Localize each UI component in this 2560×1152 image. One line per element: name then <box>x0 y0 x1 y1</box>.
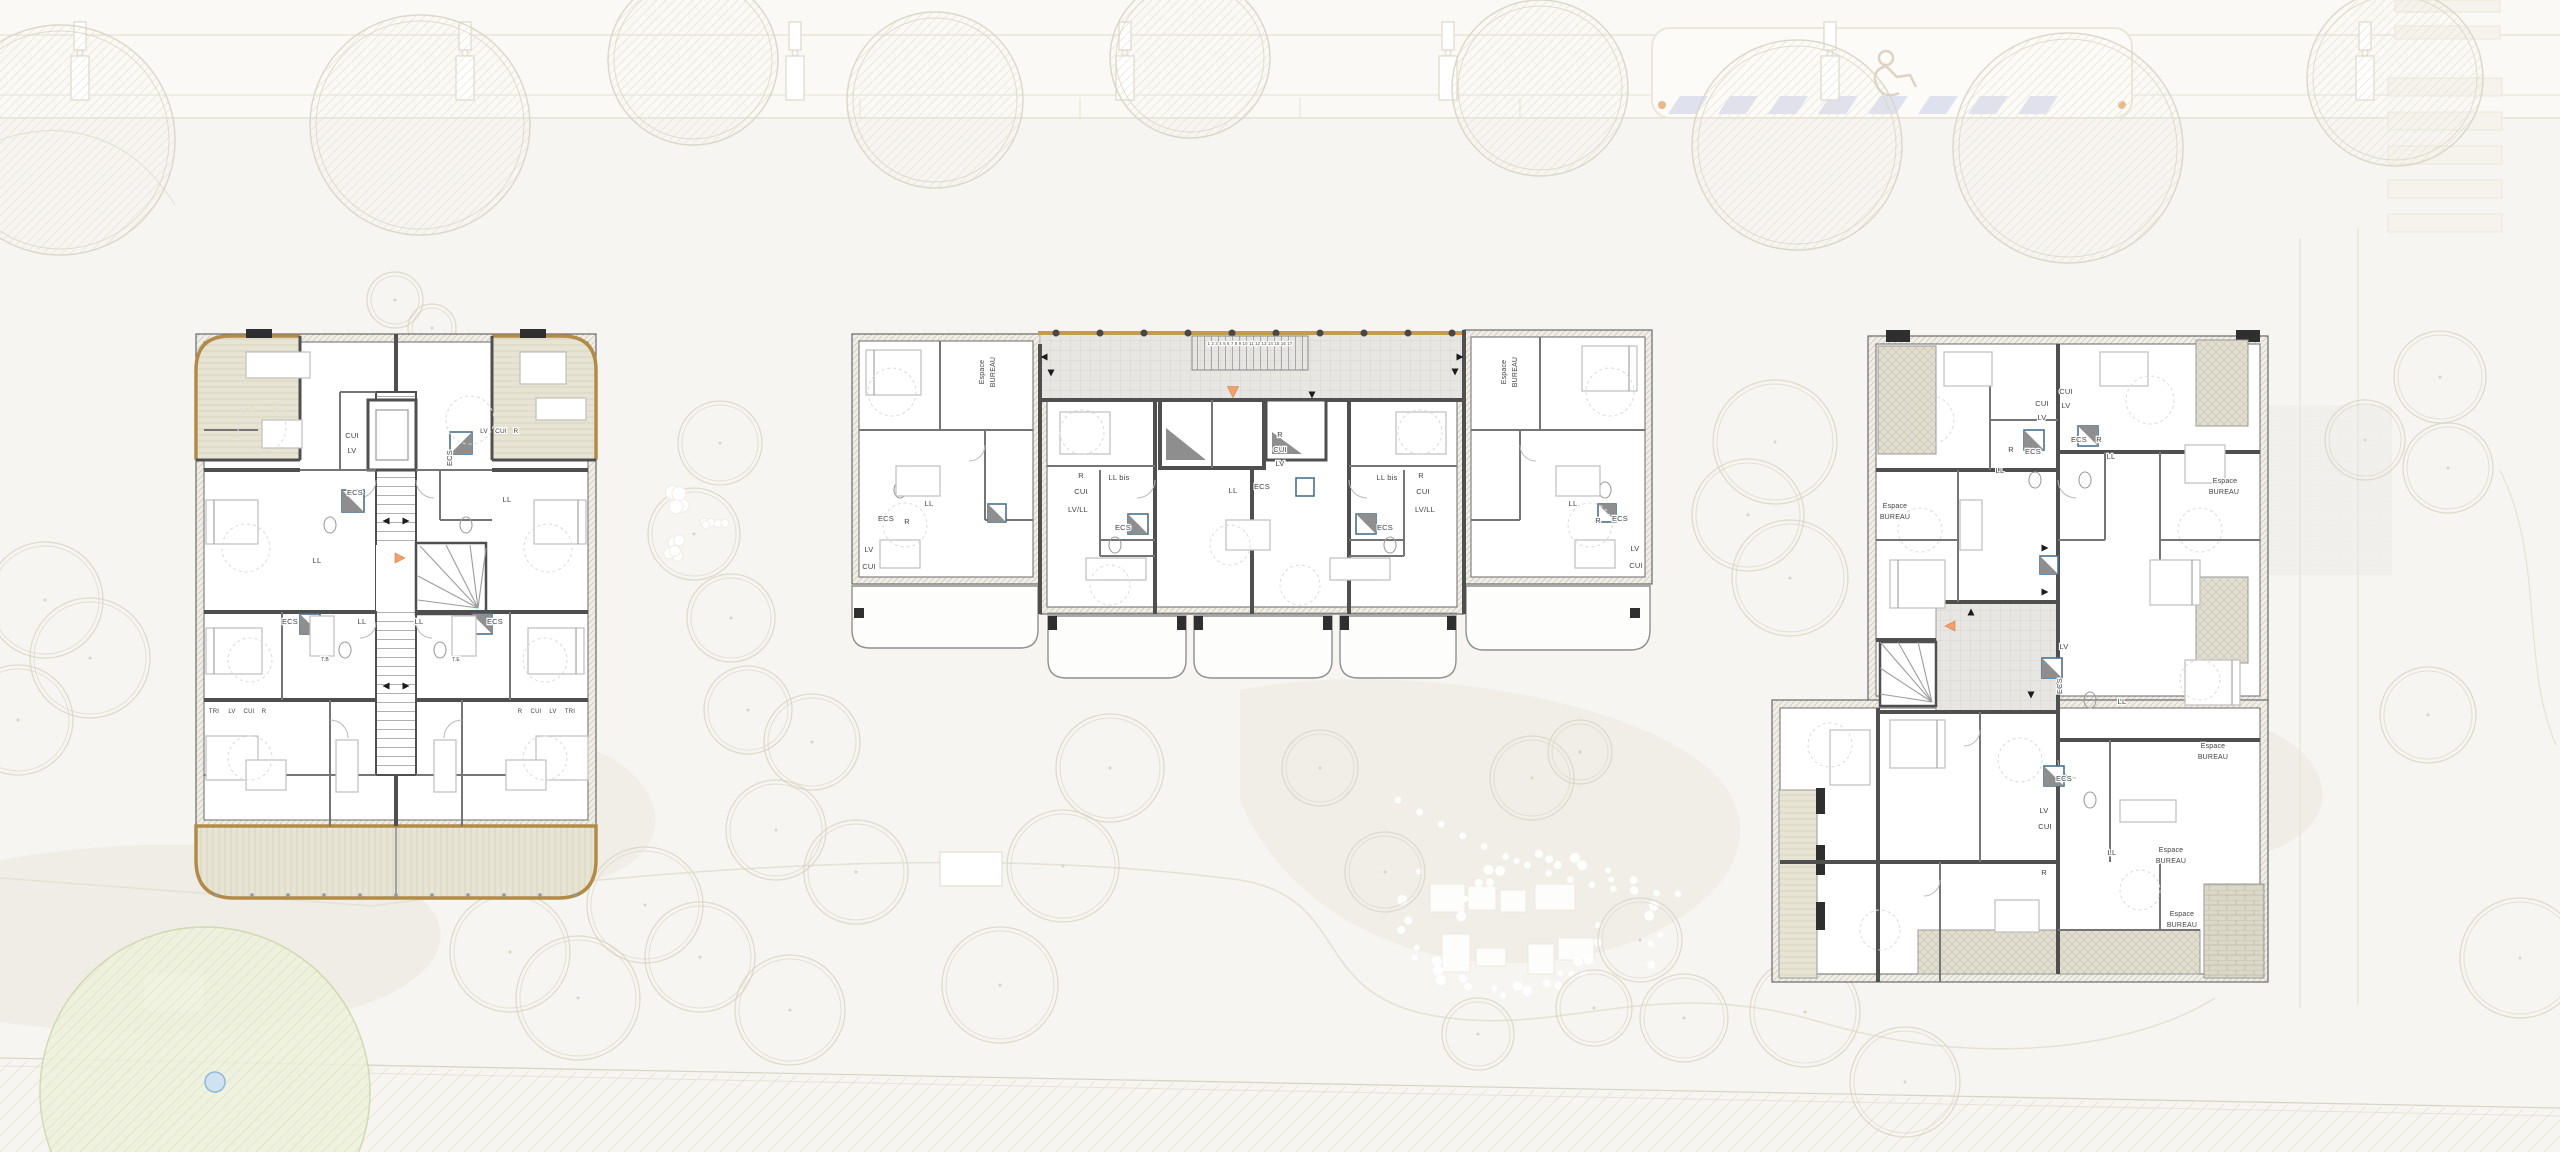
paved-area <box>2262 405 2392 575</box>
room-label: LL <box>503 495 512 504</box>
room-label: LL <box>1569 499 1578 508</box>
room-label: BUREAU <box>2167 922 2197 929</box>
room-label: ECS <box>347 488 363 497</box>
room-label: LV <box>2059 642 2068 651</box>
site-plan-canvas: CUILVLVCUIRECSECSLLLLECSLLLLECST.BT.ETRI… <box>0 0 2560 1152</box>
room-label: CUI <box>1629 561 1643 570</box>
room-label: ECS <box>2055 678 2064 694</box>
room-label: BUREAU <box>2198 754 2228 761</box>
room-label: Espace <box>979 360 986 385</box>
room-label: R <box>1277 430 1283 439</box>
room-label: LL <box>2108 848 2117 857</box>
room-label: R <box>904 517 910 526</box>
room-label: R <box>2096 435 2102 444</box>
room-label: 1 2 3 4 5 6 7 8 9 10 11 12 13 14 15 16 1… <box>1208 341 1293 346</box>
room-label: TRI <box>565 709 575 715</box>
room-label: LL <box>2107 452 2116 461</box>
room-label: BUREAU <box>1512 357 1519 387</box>
room-label: LL <box>925 499 934 508</box>
room-label: LL bis <box>1377 473 1398 482</box>
room-label: LV <box>2037 413 2046 422</box>
room-label: CUI <box>862 562 876 571</box>
room-label: R <box>514 428 519 435</box>
room-label: ECS <box>282 617 298 626</box>
room-label: ECS <box>2056 774 2072 783</box>
room-label: LV <box>480 428 488 435</box>
site-structure <box>940 852 1002 886</box>
room-label: ECS <box>878 514 894 523</box>
room-label: LL <box>1996 466 2005 475</box>
room-label: LV <box>549 709 556 715</box>
room-label: ECS <box>2071 435 2087 444</box>
room-label: TRI <box>209 709 219 715</box>
corridor-deck <box>1936 602 2058 712</box>
room-label: ECS <box>1115 523 1131 532</box>
room-label: CUI <box>2059 387 2073 396</box>
room-label: R <box>262 709 267 715</box>
room-label: LV <box>228 709 235 715</box>
room-label: LV/LL <box>1415 505 1435 514</box>
room-label: LV <box>1630 544 1639 553</box>
room-label: Espace <box>2170 911 2195 918</box>
room-label: LL <box>2118 697 2127 706</box>
room-label: R <box>2041 868 2047 877</box>
building-middle <box>852 330 1652 679</box>
room-label: LL bis <box>1109 473 1130 482</box>
room-label: LV <box>1275 459 1284 468</box>
room-label: R <box>1595 516 1601 525</box>
room-label: ECS <box>487 617 503 626</box>
floor-plan-svg: CUILVLVCUIRECSECSLLLLECSLLLLECST.BT.ETRI… <box>0 0 2560 1152</box>
room-label: LV <box>864 545 873 554</box>
room-label: CUI <box>345 431 359 440</box>
room-label: Espace <box>2201 743 2226 750</box>
room-label: BUREAU <box>2156 858 2186 865</box>
room-label: LL <box>1229 486 1238 495</box>
room-label: CUI <box>495 428 507 435</box>
room-label: LV <box>347 446 356 455</box>
room-label: BUREAU <box>1880 514 1910 521</box>
room-label: CUI <box>1416 487 1430 496</box>
room-label: CUI <box>2038 822 2052 831</box>
room-label: R <box>518 709 523 715</box>
room-label: LL <box>415 617 424 626</box>
room-label: LV/LL <box>1068 505 1088 514</box>
room-label: Espace <box>2213 478 2238 485</box>
room-label: CUI <box>244 709 255 715</box>
room-label: LV <box>2039 806 2048 815</box>
room-label: CUI <box>1074 487 1088 496</box>
room-label: Espace <box>1501 360 1508 385</box>
room-label: BUREAU <box>2209 489 2239 496</box>
room-label: ECS <box>1254 482 1270 491</box>
room-label: CUI <box>2035 399 2049 408</box>
room-label: Espace <box>2159 847 2184 854</box>
room-label: T.B <box>321 657 329 663</box>
room-label: LV <box>2061 401 2070 410</box>
building-left <box>196 329 596 898</box>
room-label: R <box>1418 471 1424 480</box>
room-label: ECS <box>445 450 454 466</box>
room-label: T.E <box>452 657 460 663</box>
room-label: BUREAU <box>990 357 997 387</box>
room-label: R <box>1078 471 1084 480</box>
room-label: ECS <box>1377 523 1393 532</box>
room-label: LL <box>358 617 367 626</box>
room-label: LL <box>313 556 322 565</box>
room-label: ECS <box>2025 447 2041 456</box>
room-label: R <box>2008 445 2014 454</box>
room-label: ECS <box>1612 514 1628 523</box>
room-label: CUI <box>531 709 542 715</box>
room-label: CUI <box>1273 445 1287 454</box>
room-label: Espace <box>1883 503 1908 510</box>
